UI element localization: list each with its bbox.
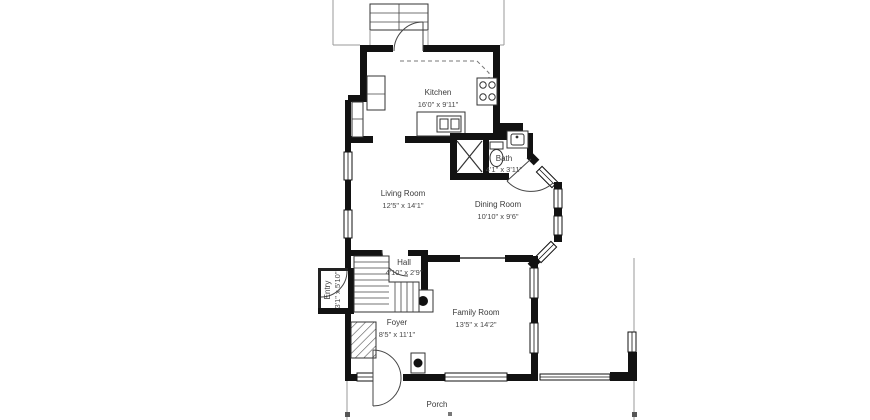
front-door <box>373 350 401 406</box>
living-room-window <box>344 152 352 180</box>
bath-dims: 4'1" x 3'11" <box>486 165 523 174</box>
chimney-hatch <box>351 322 376 358</box>
fridge-icon <box>367 76 385 110</box>
entry-label: Entry <box>323 281 332 300</box>
dining-family-wall <box>428 255 533 262</box>
closet-x-icon <box>457 141 482 172</box>
kitchen-label: Kitchen <box>425 88 452 97</box>
dining-room-dims: 10'10" x 9'6" <box>477 212 518 221</box>
family-room-window <box>530 268 538 298</box>
living-room-dims: 12'5" x 14'1" <box>382 201 423 210</box>
hall-label: Hall <box>397 258 411 267</box>
hall-dims: 4'10" x 2'9" <box>386 268 423 277</box>
foyer-dims: 8'5" x 11'1" <box>379 330 416 339</box>
entry-dims: 3'1" x 5'10" <box>333 271 342 308</box>
family-room-window <box>530 323 538 353</box>
porch-outline <box>345 381 637 420</box>
column <box>411 353 425 373</box>
cabinet-icon <box>352 102 363 137</box>
living-room-label: Living Room <box>381 189 426 198</box>
family-room-label: Family Room <box>452 308 499 317</box>
bay-window <box>527 153 562 270</box>
floor-plan: Kitchen 16'0" x 9'11" Bath 4'1" x 3'11" … <box>0 0 870 420</box>
living-room-window <box>344 210 352 238</box>
bath-sink-icon <box>507 131 528 148</box>
family-room-dims: 13'5" x 14'2" <box>455 320 496 329</box>
bath-label: Bath <box>496 154 512 163</box>
kitchen-sink-icon <box>417 112 465 136</box>
front-window <box>357 373 373 381</box>
front-window <box>445 373 507 381</box>
back-steps <box>370 4 428 45</box>
foyer-label: Foyer <box>387 318 408 327</box>
stove-icon <box>477 78 497 105</box>
kitchen-dims: 16'0" x 9'11" <box>418 100 459 109</box>
dining-room-label: Dining Room <box>475 200 522 209</box>
porch-label: Porch <box>427 400 448 409</box>
